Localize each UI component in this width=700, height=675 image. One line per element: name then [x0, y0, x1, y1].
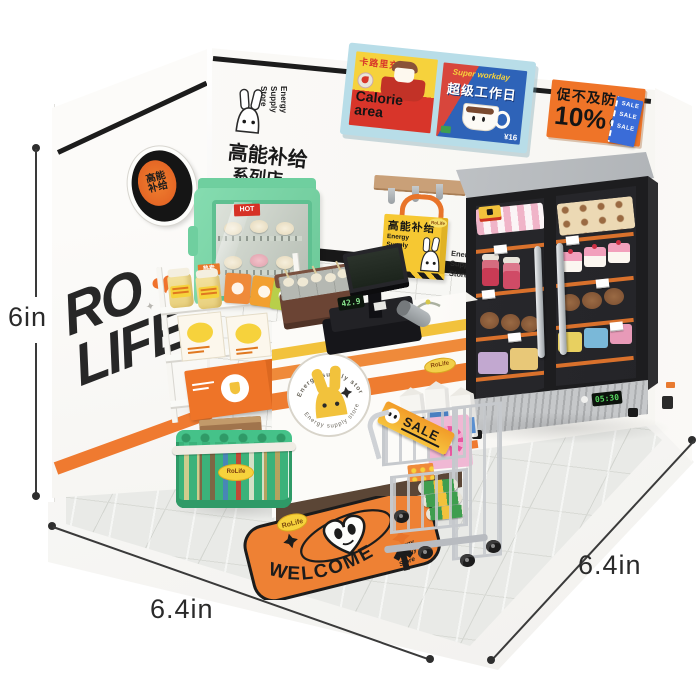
store-name-vertical: Energy Supply Store — [258, 86, 288, 130]
dimension-endpoint — [426, 655, 434, 663]
dimension-height-line — [35, 149, 37, 297]
cup-handle-icon — [493, 110, 511, 130]
poster-board: 卡路里充值 Calorie area Super workday 超级工作日 ¥… — [340, 42, 537, 153]
snack-jar — [195, 273, 222, 309]
power-socket — [662, 396, 673, 409]
dimension-height-line — [35, 343, 37, 495]
poster-calorie: 卡路里充值 Calorie area — [349, 51, 438, 133]
dimension-endpoint — [487, 656, 495, 664]
snack-box — [226, 312, 272, 360]
shopping-cart: SALE — [372, 388, 502, 570]
discount-percent: 10% — [553, 102, 607, 133]
snack-bag — [224, 273, 252, 305]
brand-badge-text: 高能补给 — [143, 170, 171, 196]
counter-badge: Energy supply store Energy supply store — [280, 346, 377, 443]
cart-wheel — [418, 546, 433, 559]
dimension-endpoint — [32, 492, 40, 500]
dimension-depth-label: 6.4in — [578, 550, 642, 581]
hot-case-handle — [188, 226, 198, 256]
poster-workday-price: ¥16 — [503, 132, 517, 142]
rolife-sticker: RoLife — [218, 464, 254, 481]
cart-lower-basket — [390, 468, 468, 534]
cart-wheel — [486, 540, 501, 553]
shopping-basket: RoLife — [176, 408, 292, 512]
socket-sticker — [666, 382, 675, 388]
cart-wheel — [394, 510, 409, 523]
register-screen — [342, 243, 409, 299]
dimension-height-label: 6in — [8, 302, 47, 333]
poster-workday: Super workday 超级工作日 ¥16 — [436, 62, 527, 144]
cup-character-icon — [394, 67, 415, 83]
snack-jar — [167, 272, 194, 308]
sale-ticket-text: SALE SALE SALE — [616, 99, 641, 136]
green-tag-icon — [440, 125, 451, 133]
fridge-warning-sticker — [478, 205, 501, 222]
fridge-button — [581, 396, 588, 403]
dimension-width-label: 6.4in — [150, 594, 214, 625]
poster-calorie-title2: area — [354, 103, 384, 119]
brand-badge-center: 高能补给 — [133, 156, 181, 210]
snack-box — [177, 311, 226, 361]
hot-label: HOT — [234, 204, 260, 217]
cart-wheel — [460, 554, 475, 567]
miniature-store-product-photo: 高能补给 RO LIFE ❤ ✦ Energy Supply Store 高能补… — [0, 0, 700, 675]
fruit-icon — [357, 72, 375, 90]
